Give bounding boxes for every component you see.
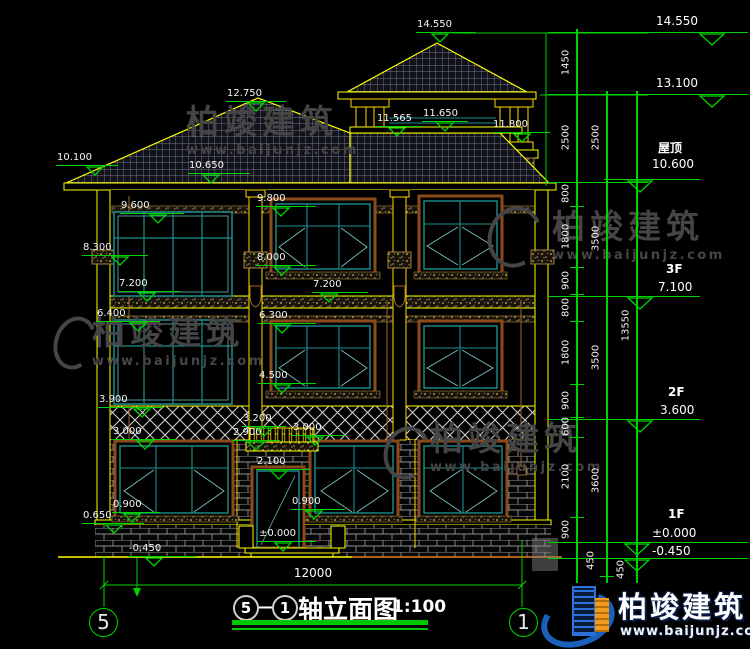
elevation-mark-label: 3.200 [243, 413, 272, 424]
elevation-triangle-icon [133, 408, 151, 418]
dim-tick [576, 203, 578, 212]
elevation-mark-label: 10.650 [189, 160, 224, 171]
dim-tick [576, 414, 578, 423]
drawing-scale: 1:100 [392, 597, 446, 617]
elevation-mark-label: 12.750 [227, 88, 262, 99]
floor-name-label: 3F [666, 262, 683, 276]
elevation-triangle-icon [202, 174, 220, 184]
elevation-triangle-icon [129, 322, 147, 332]
elevation-triangle-icon [273, 266, 291, 276]
elevation-triangle-icon [247, 441, 265, 451]
title-underline-thin [232, 628, 428, 630]
dim-tick [576, 318, 578, 327]
elevation-triangle-icon [699, 33, 725, 46]
dim-value-label: 600 [561, 401, 572, 453]
dim-tick [606, 91, 608, 100]
overall-dimension-label: 12000 [283, 566, 343, 580]
elevation-triangle-icon [274, 542, 292, 552]
dim-tick [606, 416, 608, 425]
elevation-triangle-icon [123, 513, 141, 523]
dim-value-label: 1800 [561, 326, 572, 378]
dim-tick [576, 179, 578, 188]
elevation-mark-label: 8.000 [257, 252, 286, 263]
dim-chain-line [606, 95, 608, 583]
axis-bubble-left: 5 [89, 608, 118, 637]
elevation-mark-label: 3.900 [99, 394, 128, 405]
elevation-triangle-icon [431, 33, 449, 43]
elevation-triangle-icon [305, 510, 323, 520]
dim-tick [576, 264, 578, 273]
elevation-mark-label: 9.600 [121, 200, 150, 211]
dim-tick [606, 179, 608, 188]
elevation-triangle-icon [320, 293, 338, 303]
elevation-triangle-icon [136, 440, 154, 450]
dim-tick [576, 29, 578, 38]
elevation-mark-label: 4.500 [259, 370, 288, 381]
level-value-label: -0.450 [652, 544, 691, 558]
dim-tick [576, 91, 578, 100]
cad-elevation-viewport: 柏竣建筑 www.baijunjz.com 柏竣建筑 www.baijunjz.… [0, 0, 750, 649]
elevation-mark-label: 10.100 [57, 152, 92, 163]
dim-value-label: 3500 [591, 213, 602, 265]
dimension-overlay: 10.1009.6008.3007.2006.4003.9003.0000.65… [0, 0, 750, 649]
elevation-triangle-icon [247, 102, 265, 112]
elevation-triangle-icon [306, 436, 324, 446]
elevation-mark-label: 11.650 [423, 108, 458, 119]
brand-logo-building-icon [572, 586, 596, 636]
level-value-label: 14.550 [656, 14, 698, 28]
elevation-triangle-icon [270, 470, 288, 480]
elevation-mark-label: 6.300 [259, 310, 288, 321]
elevation-mark-label: 8.300 [83, 242, 112, 253]
elevation-triangle-icon [273, 324, 291, 334]
title-axis-end-bubble: 1 [272, 595, 298, 621]
brand-logo-building-icon [595, 598, 609, 632]
elevation-triangle-icon [436, 122, 454, 132]
level-value-label: ±0.000 [652, 526, 696, 540]
level-value-label: 10.600 [652, 157, 694, 171]
brand-logo-url: www.baijunjz.com [620, 624, 750, 639]
dim-value-label: 2500 [561, 112, 572, 164]
dim-value-label: 2100 [561, 451, 572, 503]
level-value-label: 3.600 [660, 403, 694, 417]
dim-tick [576, 514, 578, 523]
elevation-mark-label: -0.450 [129, 543, 161, 554]
elevation-mark-label: 3.000 [113, 426, 142, 437]
elevation-triangle-icon [388, 127, 406, 137]
dim-tick [606, 293, 608, 302]
dim-tick [606, 539, 608, 548]
elevation-mark-label: 0.900 [113, 499, 142, 510]
floor-name-label: 屋顶 [658, 139, 682, 156]
axis-bubble-right: 1 [509, 608, 538, 637]
dim-chain-line [576, 33, 578, 583]
elevation-triangle-icon [86, 166, 104, 176]
elevation-mark-label: 14.550 [417, 19, 452, 30]
dim-value-label: 450 [586, 535, 597, 587]
elevation-triangle-icon [105, 524, 123, 534]
dim-tick [606, 573, 608, 582]
elevation-mark-label: 11.565 [377, 113, 412, 124]
elevation-triangle-icon [138, 292, 156, 302]
brand-logo-name: 柏竣建筑 [618, 584, 746, 626]
elevation-mark-label: 2.100 [257, 456, 286, 467]
elevation-triangle-icon [111, 256, 129, 266]
elevation-mark-line [98, 407, 164, 408]
dim-value-label: 2500 [591, 112, 602, 164]
dim-tick [576, 291, 578, 300]
dim-tick [636, 555, 638, 564]
floor-name-label: 2F [668, 385, 685, 399]
elevation-mark-label: 0.650 [83, 510, 112, 521]
dim-value-label: 900 [561, 503, 572, 555]
level-connector-line [548, 32, 648, 33]
title-axis-start-bubble: 5 [233, 595, 259, 621]
dim-value-label: 1450 [561, 37, 572, 89]
elevation-triangle-icon [145, 557, 163, 567]
dim-value-label: 3600 [591, 454, 602, 506]
elevation-mark-label: 3.000 [293, 422, 322, 433]
dim-tick [576, 434, 578, 443]
dim-value-label: 13550 [621, 300, 632, 352]
elevation-triangle-icon [273, 384, 291, 394]
dim-tick [576, 381, 578, 390]
elevation-mark-line [96, 321, 160, 322]
elevation-mark-label: ±0.000 [259, 528, 296, 539]
level-value-label: 13.100 [656, 76, 698, 90]
elevation-mark-label: 7.200 [119, 278, 148, 289]
elevation-mark-label: 7.200 [313, 279, 342, 290]
dim-tick [576, 555, 578, 564]
dim-value-label: 800 [561, 281, 572, 333]
elevation-mark-label: 11.800 [493, 119, 528, 130]
dim-tick [636, 91, 638, 100]
title-underline [232, 620, 428, 625]
floor-name-label: 1F [668, 507, 685, 521]
elevation-mark-label: 6.400 [97, 308, 126, 319]
dim-value-label: 3500 [591, 331, 602, 383]
elevation-triangle-icon [272, 207, 290, 217]
elevation-triangle-icon [513, 133, 531, 143]
dim-chain-line [636, 95, 638, 583]
elevation-mark-label: 9.800 [257, 193, 286, 204]
level-value-label: 7.100 [658, 280, 692, 294]
elevation-mark-label: 0.900 [292, 496, 321, 507]
dim-tick [576, 539, 578, 548]
elevation-triangle-icon [149, 214, 167, 224]
elevation-triangle-icon [627, 420, 653, 433]
elevation-mark-label: 2.900 [233, 427, 262, 438]
elevation-triangle-icon [699, 95, 725, 108]
